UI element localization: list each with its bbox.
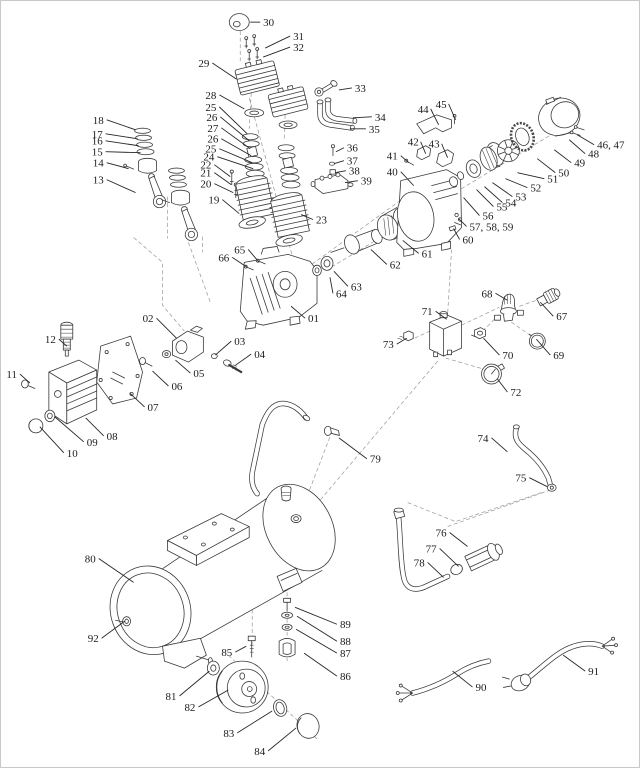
part-label-70: 70 (502, 350, 513, 362)
leader-line-87 (295, 607, 337, 624)
crankcase-01 (240, 246, 317, 329)
leader-line-85 (296, 629, 337, 653)
part-label-72: 72 (510, 387, 521, 399)
piston-assembly-2 (161, 168, 197, 241)
check-valve-76 (464, 540, 505, 572)
part-label-17: 17 (92, 129, 103, 141)
leader-line-78 (99, 558, 134, 582)
part-label-61: 61 (422, 248, 433, 260)
part-label-73: 73 (383, 339, 394, 351)
leader-line-53 (492, 183, 512, 197)
part-label-04: 04 (254, 349, 265, 361)
valve-stack-left (242, 134, 264, 177)
part-label-11: 11 (6, 369, 17, 381)
diagram-page: 0102030405060708091011121314151617181920… (0, 0, 640, 768)
part-label-71: 71 (422, 306, 433, 318)
leader-line-51 (517, 173, 544, 179)
leader-line-82 (268, 728, 296, 751)
filter-housing-08 (49, 360, 97, 424)
part-label-65: 65 (234, 244, 245, 256)
part-label-62: 62 (390, 259, 401, 271)
leader-line-60 (371, 249, 387, 264)
part-label-49: 49 (574, 158, 585, 170)
part-label-81: 81 (165, 691, 176, 703)
leader-line-89 (563, 655, 585, 671)
part-label-06: 06 (171, 381, 182, 393)
power-cord-91 (502, 637, 617, 693)
plug-79 (324, 426, 339, 435)
part-label-48: 48 (588, 149, 599, 161)
part-label-43: 43 (429, 139, 440, 151)
gasket-plate-07 (97, 336, 143, 404)
part-label-60: 60 (463, 234, 474, 246)
part-label-76: 76 (436, 528, 447, 540)
leader-line-73 (529, 478, 547, 487)
leader-line-39 (335, 171, 346, 173)
part-label-64: 64 (336, 288, 347, 300)
part-label-53: 53 (515, 192, 526, 204)
part-label-75: 75 (515, 473, 526, 485)
leader-line-20 (214, 173, 231, 185)
part-label-10: 10 (67, 448, 78, 460)
crankshaft-62 (331, 228, 384, 256)
leader-line-38 (334, 161, 344, 164)
part-label-36: 36 (347, 143, 358, 155)
elbow-fitting-33 (315, 79, 338, 96)
head-bolts-31-32 (245, 35, 259, 61)
part-label-07: 07 (148, 402, 159, 414)
leader-line-37 (336, 148, 344, 152)
part-label-89: 89 (340, 619, 351, 631)
ring-09 (45, 410, 55, 422)
labels-layer: 0102030405060708091011121314151617181920… (6, 17, 625, 758)
leader-line-77 (339, 438, 367, 459)
leader-line-86 (297, 616, 337, 641)
retainer-ring-83 (272, 698, 289, 718)
leader-line-79 (179, 671, 209, 696)
bracket-02 (172, 326, 203, 362)
leader-line-52 (505, 179, 527, 188)
controls-group (398, 286, 562, 384)
tubes-34-35 (317, 98, 357, 130)
leader-line-14 (106, 152, 141, 153)
part-label-46-47: 46, 47 (597, 140, 625, 152)
part-label-08: 08 (107, 431, 118, 443)
tank-port (291, 515, 301, 523)
part-label-25: 25 (205, 144, 216, 156)
leader-line-65 (540, 302, 553, 316)
part-label-91: 91 (588, 666, 599, 678)
leader-line-56 (464, 198, 480, 216)
leader-line-5 (153, 371, 169, 386)
part-label-15: 15 (92, 147, 103, 159)
part-label-80: 80 (85, 553, 96, 565)
part-label-44: 44 (418, 104, 429, 116)
part-label-83: 83 (223, 728, 234, 740)
part-label-45: 45 (436, 99, 447, 111)
leader-line-29 (219, 95, 244, 109)
part-label-38: 38 (349, 166, 360, 178)
rotor-fan-stack (448, 90, 585, 230)
part-label-63: 63 (351, 281, 362, 293)
tank-fitting (281, 486, 291, 501)
intake-cap-30 (229, 14, 249, 31)
leader-line-7 (86, 418, 104, 436)
valve-stack-right (278, 145, 300, 188)
manifold-39 (311, 173, 353, 194)
air-compressor-parts-diagram: 0102030405060708091011121314151617181920… (1, 1, 639, 767)
leader-line-16 (106, 134, 138, 139)
pins-36-38 (329, 145, 335, 175)
leader-line-72 (491, 438, 507, 452)
part-label-51: 51 (547, 174, 558, 186)
leader-line-30 (212, 63, 236, 79)
part-label-28: 28 (205, 90, 216, 102)
part-label-13: 13 (93, 175, 104, 187)
leader-line-71 (397, 338, 407, 344)
part-label-29: 29 (198, 58, 209, 70)
leader-line-1 (157, 318, 177, 338)
leader-line-12 (107, 180, 136, 193)
gauge-72 (481, 364, 504, 384)
bearings-63-64 (313, 256, 333, 275)
leg-bolt-set (279, 598, 295, 657)
part-label-52: 52 (530, 183, 541, 195)
part-label-57-58-59: 57, 58, 59 (470, 221, 514, 233)
part-label-19: 19 (208, 195, 219, 207)
part-label-18: 18 (93, 115, 104, 127)
part-label-78: 78 (414, 557, 425, 569)
leader-line-47 (577, 135, 594, 145)
part-label-69: 69 (553, 350, 564, 362)
wheel-82 (216, 661, 268, 713)
outlet-pipe-76-78 (394, 508, 506, 589)
leader-line-2 (215, 341, 231, 355)
part-label-55: 55 (496, 202, 507, 214)
part-label-14: 14 (93, 158, 104, 170)
bolt-04 (222, 359, 241, 372)
part-label-33: 33 (355, 83, 366, 95)
washer-05 (162, 351, 170, 358)
part-label-40: 40 (387, 167, 398, 179)
leader-line-48 (569, 140, 585, 154)
leader-line-15 (106, 141, 139, 146)
leader-line-84 (304, 653, 337, 676)
leader-line-32 (265, 36, 290, 48)
part-label-66: 66 (218, 252, 229, 264)
piston-assembly-13-18 (124, 128, 166, 208)
leader-line-75 (440, 548, 459, 566)
part-label-35: 35 (369, 124, 380, 136)
part-label-90: 90 (476, 682, 487, 694)
cylinder-left (233, 173, 277, 230)
part-label-86: 86 (340, 671, 351, 683)
part-label-68: 68 (482, 288, 493, 300)
part-label-32: 32 (293, 42, 304, 54)
leader-line-34 (339, 88, 352, 90)
cap-10 (29, 419, 43, 433)
cylinder-head-29 (234, 57, 309, 118)
part-label-23: 23 (316, 215, 327, 227)
part-label-42: 42 (408, 137, 419, 149)
axle-bolt-85 (248, 636, 255, 657)
motor-bracket-44-45 (417, 114, 456, 133)
leader-line-18 (222, 200, 239, 214)
part-label-88: 88 (340, 636, 351, 648)
part-label-41: 41 (387, 151, 398, 163)
part-label-85: 85 (221, 647, 232, 659)
leader-line-74 (450, 533, 468, 547)
bolt-06 (140, 357, 152, 366)
leader-line-81 (237, 711, 272, 733)
leader-line-3 (234, 354, 251, 366)
part-label-12: 12 (45, 334, 56, 346)
part-label-05: 05 (193, 368, 204, 380)
leader-line-70 (497, 379, 507, 392)
part-label-01: 01 (308, 313, 319, 325)
leader-line-61 (334, 271, 348, 286)
leader-line-49 (554, 150, 571, 163)
handle (252, 404, 311, 494)
part-label-79: 79 (370, 454, 381, 466)
part-label-67: 67 (556, 311, 567, 323)
part-label-74: 74 (478, 433, 489, 445)
leader-line-9 (40, 427, 64, 453)
part-label-77: 77 (426, 543, 437, 555)
leader-line-33 (263, 47, 290, 57)
part-label-34: 34 (375, 112, 386, 124)
leader-line-35 (353, 117, 372, 118)
leader-line-62 (330, 277, 333, 293)
cylinder-right-23 (268, 190, 312, 248)
leader-line-83 (235, 646, 246, 652)
leader-line-19 (214, 184, 233, 193)
part-label-03: 03 (234, 336, 245, 348)
part-label-09: 09 (87, 437, 98, 449)
washer-81 (207, 661, 219, 675)
part-label-84: 84 (254, 746, 265, 758)
hub-cap-84 (294, 711, 322, 741)
part-label-39: 39 (361, 176, 372, 188)
part-label-02: 02 (143, 313, 154, 325)
leader-line-17 (107, 120, 136, 130)
air-tank-80 (98, 404, 350, 669)
quick-coupler-67 (536, 286, 562, 308)
part-label-30: 30 (263, 17, 274, 29)
part-label-50: 50 (558, 168, 569, 180)
filter-valve-12 (61, 322, 73, 356)
part-label-92: 92 (88, 633, 99, 645)
leader-line-46 (449, 104, 456, 120)
fitting-70 (472, 328, 486, 339)
part-label-82: 82 (184, 702, 195, 714)
leader-line-50 (537, 159, 555, 173)
leader-line-68 (483, 338, 499, 355)
part-label-87: 87 (340, 648, 351, 660)
leader-line-76 (428, 562, 444, 577)
part-label-20: 20 (200, 179, 211, 191)
